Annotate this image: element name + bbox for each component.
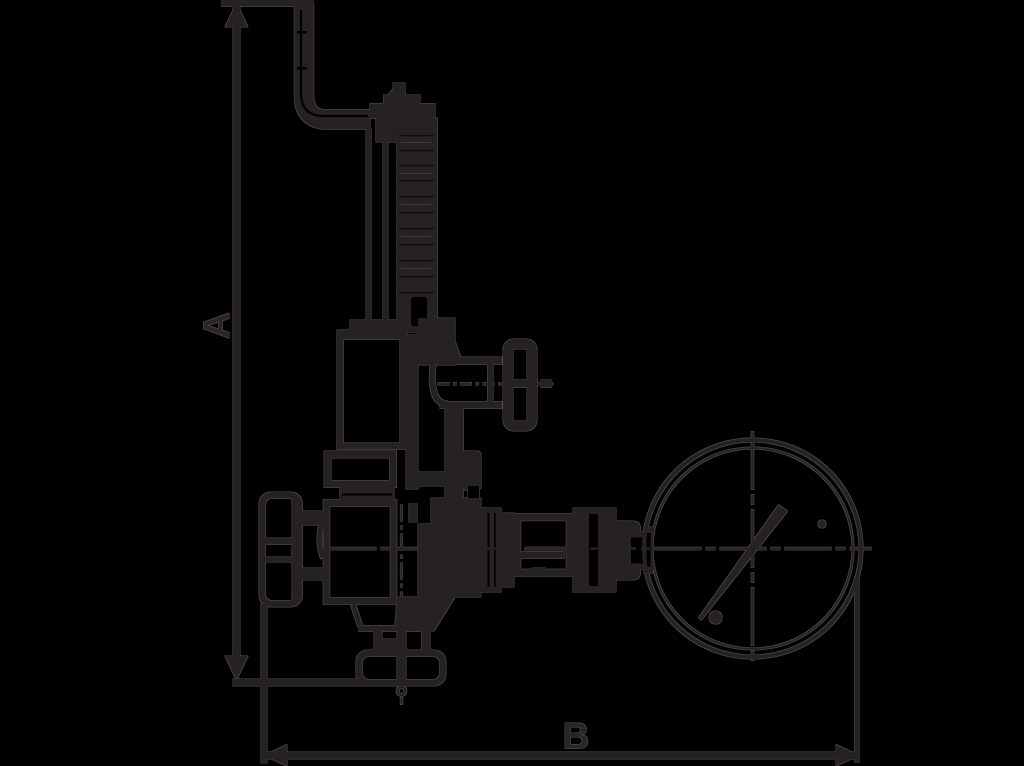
svg-text:A: A <box>196 312 237 339</box>
svg-text:B: B <box>563 716 590 757</box>
